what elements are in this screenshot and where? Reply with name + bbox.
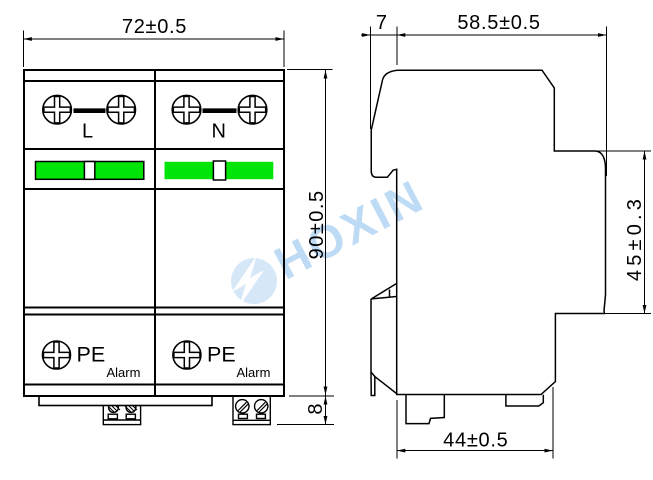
svg-text:44±0.5: 44±0.5	[443, 430, 508, 452]
svg-text:PE: PE	[77, 343, 106, 367]
svg-text:PE: PE	[207, 343, 236, 367]
svg-text:58.5±0.5: 58.5±0.5	[457, 12, 540, 34]
svg-text:N: N	[212, 121, 226, 143]
svg-text:8: 8	[305, 403, 327, 414]
svg-text:72±0.5: 72±0.5	[122, 16, 187, 38]
svg-text:Alarm: Alarm	[107, 365, 141, 380]
svg-text:HOXIN: HOXIN	[266, 169, 433, 289]
svg-text:45±0.3: 45±0.3	[624, 195, 646, 281]
svg-text:L: L	[82, 121, 93, 143]
svg-text:Alarm: Alarm	[237, 365, 271, 380]
svg-text:7: 7	[376, 12, 387, 34]
svg-text:90±0.5: 90±0.5	[306, 189, 328, 259]
